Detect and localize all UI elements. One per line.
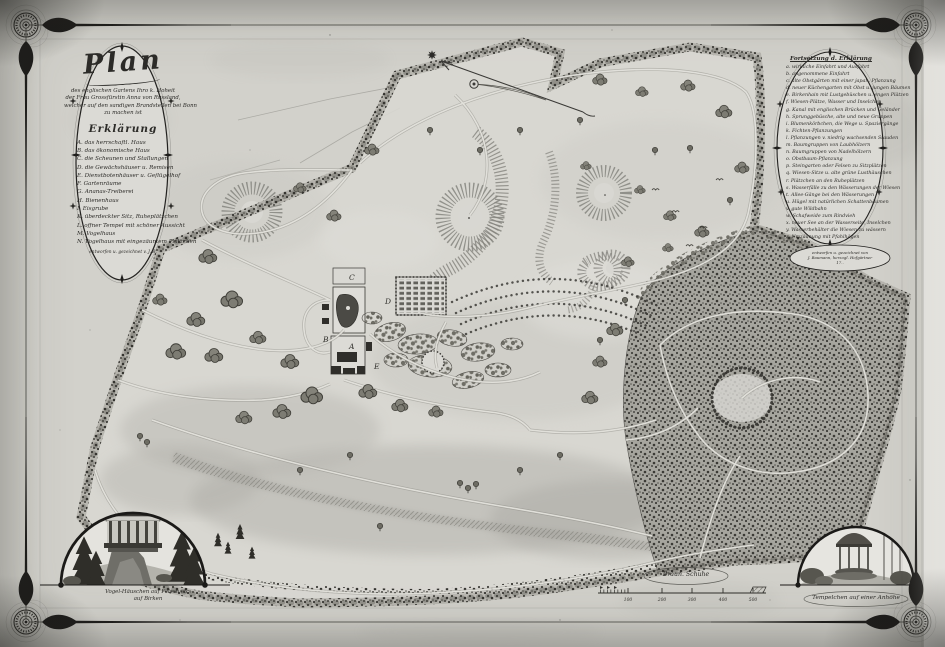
map-letter: D	[384, 297, 391, 306]
legend-item: H. Bienenhaus	[77, 197, 182, 205]
legend-footer: entworfen u. gezeichnet v. J. B.	[64, 249, 182, 256]
continuation-item: n. Baumgruppen von Nadelhölzern	[786, 149, 885, 156]
continuation-cartouche: Fortsetzung d. Erklärung a. wirkliche Ei…	[777, 55, 885, 250]
continuation-item: t. Allee-Gänge bei den Wässerungen	[786, 192, 885, 199]
scale-tick-label: 100	[624, 597, 633, 603]
vignette-left-caption: Vogel-Häuschen auf Felsen etc.auf Birken	[76, 589, 220, 603]
subtitle-line: welcher auf den sandigen Brandstellen be…	[64, 103, 182, 110]
continuation-header: Fortsetzung d. Erklärung	[777, 55, 885, 63]
subtitle-line: der Frau Grossfürstin Anna von Russland,	[64, 95, 182, 102]
fountain	[346, 306, 350, 310]
legend-item: K. überdeckter Sitz, Ruheplätzchen	[77, 213, 182, 221]
legend-item: M. Vogelhaus	[77, 230, 182, 238]
kitchen-garden	[396, 277, 446, 315]
continuation-item: s. Wasserfälle zu den Wässerungen der Wi…	[786, 185, 885, 192]
vignette-right-caption: Tempelchen auf einer Anhöhe	[794, 594, 918, 602]
continuation-item: f. Wiesen-Plätze, Wasser und Inselchen	[786, 99, 885, 106]
scale-tick-label: 500	[749, 597, 758, 603]
legend-item: B. das ökonomische Haus	[77, 147, 182, 155]
legend-item: F. Gartenräume	[77, 180, 182, 188]
map-letter: C	[349, 273, 355, 282]
subtitle-line: des englischen Gartens Ihro k. Hoheit	[64, 88, 182, 95]
legend-item: G. Ananas-Treiberei	[77, 188, 182, 196]
continuation-item: c. alte Obstgärten mit einer japan. Pfla…	[786, 78, 885, 85]
legend-item: N. Vogelhaus mit eingezäuntem Plätzchen	[77, 238, 182, 246]
cartouche-subtitle: des englischen Gartens Ihro k. Hoheitder…	[64, 88, 182, 118]
title-cartouche: Plan des englischen Gartens Ihro k. Hohe…	[64, 48, 182, 286]
continuation-item: y. Wasserbehälter die Wiesen zu wässern	[786, 227, 885, 234]
continuation-item: z. Umzäunung mit Pfahlhägen	[786, 234, 885, 241]
scale-bar-label: Braun. Schuhe	[642, 571, 730, 578]
legend-item: C. die Scheunen und Stallungen	[77, 155, 182, 163]
continuation-item: l. Pflanzungen v. niedrig wachsenden Sta…	[786, 135, 885, 142]
continuation-item: a. wirkliche Einfahrt und Ausfahrt	[786, 64, 885, 71]
continuation-item: i. Blumenkörbchen, die Wege u. Spaziergä…	[786, 121, 885, 128]
continuation-item: b. angenommene Einfahrt	[786, 71, 885, 78]
continuation-list: a. wirkliche Einfahrt und Ausfahrtb. ang…	[777, 64, 885, 241]
continuation-item: x. neuer See an der Wasserseite, Inselch…	[786, 220, 885, 227]
continuation-item: k. Fichten-Pflanzungen	[786, 128, 885, 135]
subtitle-line: zu machen ist	[64, 110, 182, 117]
caption-line: auf Birken	[76, 596, 220, 603]
screenshot-root: C D A B E	[0, 0, 945, 647]
legend-item: D. die Gewächshäuser u. Remisen	[77, 164, 182, 172]
legend-item: L. offner Tempel mit schöner Aussicht	[77, 222, 182, 230]
continuation-item: v. gute Wildbahn	[786, 206, 885, 213]
scale-tick-label: 200	[657, 597, 667, 603]
map-letter: E	[373, 362, 380, 371]
continuation-item: m. Baumgruppen von Laubhölzern	[786, 142, 885, 149]
continuation-item: g. Kanal mit englischen Brücken und Gelä…	[786, 107, 885, 114]
caption-line: Vogel-Häuschen auf Felsen etc.	[76, 589, 220, 596]
legend-list: A. das herrschaftl. HausB. das ökonomisc…	[64, 139, 182, 247]
scale-tick-label: 400	[718, 597, 728, 603]
map-letter: A	[348, 342, 355, 351]
continuation-item: q. Wiesen-Sitze u. alte grüne Lusthäusch…	[786, 170, 885, 177]
signature-line: 17..	[791, 260, 889, 265]
continuation-item: u. Hügel mit natürlichen Schattenbäumen	[786, 199, 885, 206]
legend-item: E. Dienstbotenhäuser u. Geflügelhof	[77, 172, 182, 180]
signature-cartouche: entworfen u. gezeichnet vonJ. Baumann, h…	[791, 250, 889, 265]
continuation-item: p. Steingarten oder Felsen zu Sitzplätze…	[786, 163, 885, 170]
continuation-item: r. Plätzchen an den Ruheplätzen	[786, 178, 885, 185]
legend-item: I. Eisgrube	[77, 205, 182, 213]
legend-item: A. das herrschaftl. Haus	[77, 139, 182, 147]
map-sheet: C D A B E	[0, 0, 945, 647]
continuation-item: o. Obstbaum-Pflanzung	[786, 156, 885, 163]
continuation-item: e. Birkenhain mit Lustgebüschen u. engen…	[786, 92, 885, 99]
legend-header: Erklärung	[64, 122, 182, 137]
continuation-item: w. Schafweide zum Rindvieh	[786, 213, 885, 220]
map-title: Plan	[63, 44, 183, 82]
map-letter: B	[322, 335, 329, 344]
continuation-item: d. neuer Küchengarten mit Obst u. jungen…	[786, 85, 885, 92]
continuation-item: h. Sprunggebüsche, alte und neue Gruppen	[786, 114, 885, 121]
north-star-icon	[425, 48, 439, 62]
scale-tick-label: 300	[688, 597, 697, 603]
